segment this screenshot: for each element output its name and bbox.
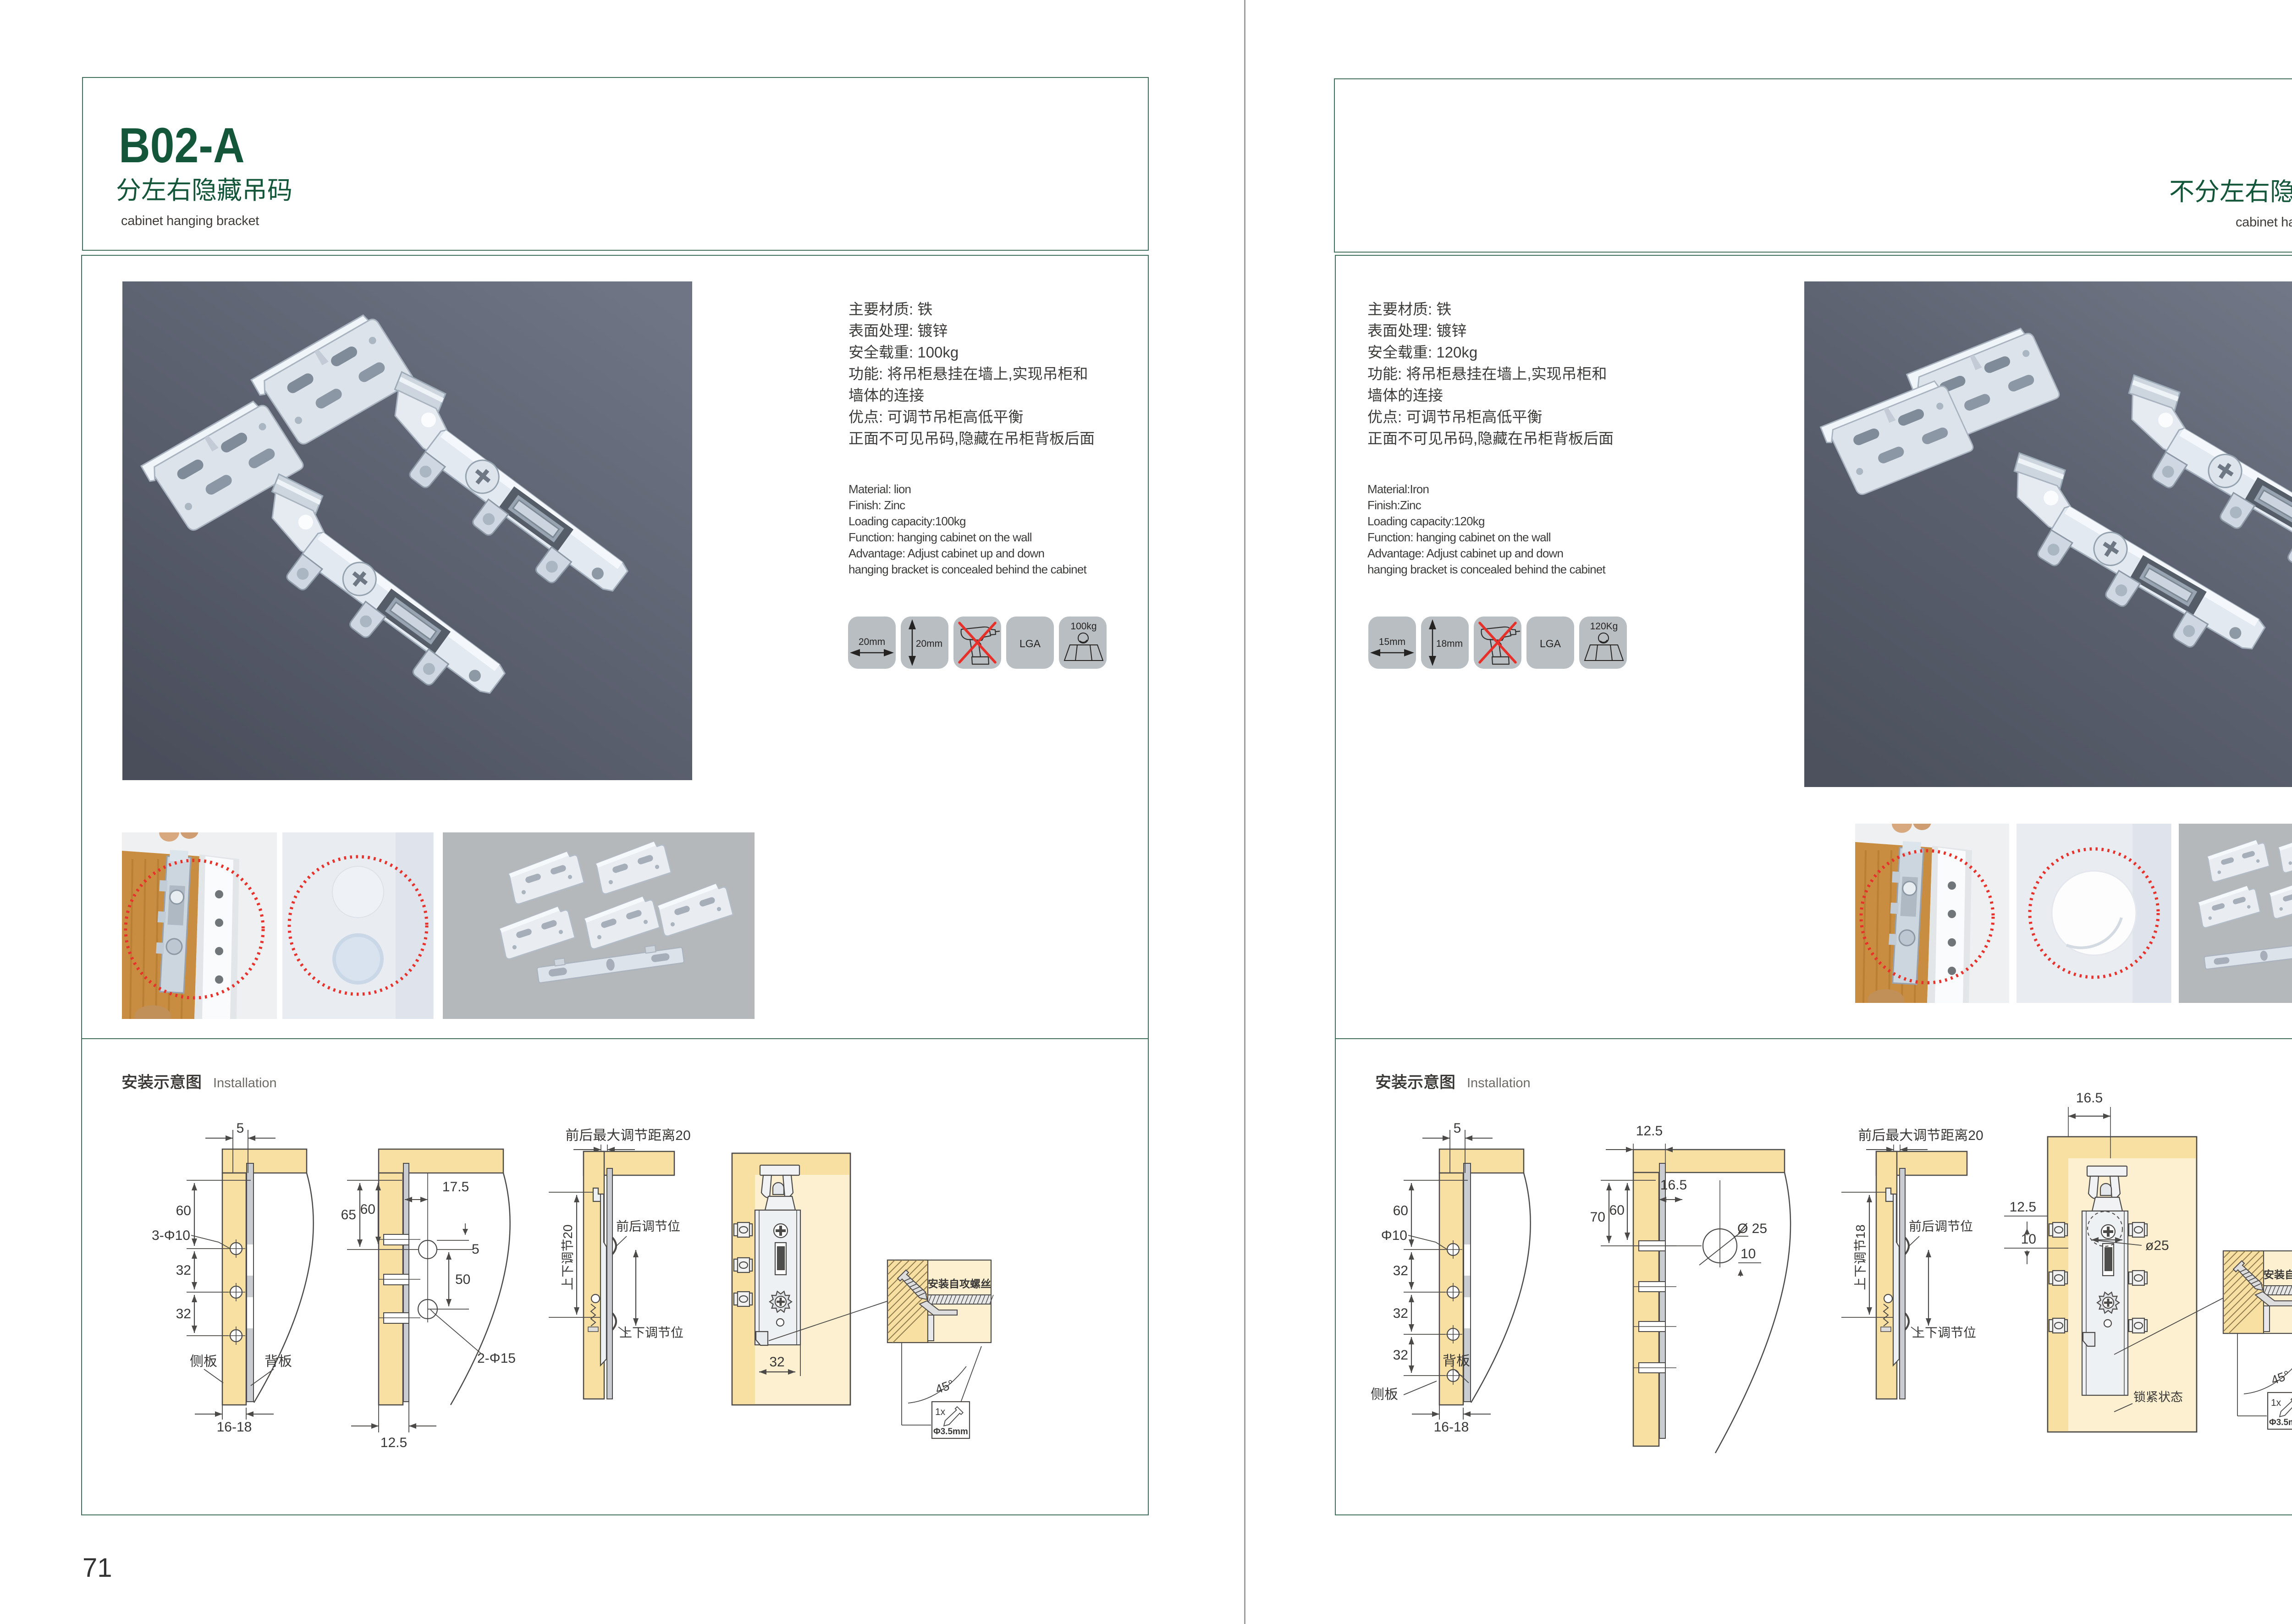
svg-text:32: 32 <box>1393 1306 1408 1321</box>
svg-text:18mm: 18mm <box>1436 639 1463 649</box>
svg-text:32: 32 <box>1393 1263 1408 1278</box>
svg-text:1x: 1x <box>935 1407 946 1417</box>
svg-text:16.5: 16.5 <box>1660 1178 1687 1193</box>
svg-text:50: 50 <box>455 1272 470 1287</box>
svg-text:20mm: 20mm <box>859 637 885 647</box>
svg-text:5: 5 <box>237 1121 244 1136</box>
svg-text:20mm: 20mm <box>916 639 942 649</box>
svg-text:上下调节位: 上下调节位 <box>619 1323 683 1341</box>
svg-text:45°: 45° <box>934 1377 956 1396</box>
svg-text:120Kg: 120Kg <box>1590 621 1618 632</box>
svg-text:Ø 25: Ø 25 <box>1737 1221 1767 1236</box>
svg-text:32: 32 <box>176 1263 191 1278</box>
svg-text:上下调节18: 上下调节18 <box>1851 1224 1869 1290</box>
svg-text:锁紧状态: 锁紧状态 <box>2133 1387 2183 1405</box>
svg-text:16-18: 16-18 <box>1434 1420 1469 1435</box>
svg-text:前后最大调节距离20: 前后最大调节距离20 <box>565 1124 690 1144</box>
svg-text:LGA: LGA <box>1019 638 1041 650</box>
svg-text:32: 32 <box>1393 1348 1408 1363</box>
svg-text:Installation: Installation <box>213 1076 277 1090</box>
svg-text:侧板: 侧板 <box>190 1350 217 1370</box>
svg-text:65: 65 <box>341 1207 356 1222</box>
svg-text:2-Φ15: 2-Φ15 <box>477 1351 516 1366</box>
svg-text:16.5: 16.5 <box>2076 1090 2103 1106</box>
svg-text:60: 60 <box>1609 1203 1625 1218</box>
svg-text:12.5: 12.5 <box>1636 1123 1663 1139</box>
svg-text:32: 32 <box>769 1354 784 1370</box>
svg-text:安装示意图: 安装示意图 <box>121 1069 202 1093</box>
svg-text:70: 70 <box>1590 1210 1605 1225</box>
svg-text:100kg: 100kg <box>1070 621 1096 632</box>
svg-text:侧板: 侧板 <box>1371 1383 1398 1403</box>
svg-text:15mm: 15mm <box>1379 637 1405 647</box>
svg-text:3-Φ10: 3-Φ10 <box>152 1228 190 1243</box>
svg-text:前后最大调节距离20: 前后最大调节距离20 <box>1858 1124 1983 1144</box>
svg-text:12.5: 12.5 <box>2010 1200 2036 1215</box>
svg-text:45°: 45° <box>2270 1368 2292 1387</box>
svg-text:60: 60 <box>360 1202 375 1217</box>
svg-text:32: 32 <box>176 1306 191 1321</box>
svg-text:60: 60 <box>176 1203 191 1218</box>
svg-text:上下调节位: 上下调节位 <box>1912 1323 1976 1341</box>
svg-text:背板: 背板 <box>264 1350 292 1370</box>
svg-text:Installation: Installation <box>1467 1076 1531 1090</box>
svg-text:前后调节位: 前后调节位 <box>616 1217 680 1235</box>
svg-text:Φ3.5mm: Φ3.5mm <box>2269 1418 2292 1427</box>
svg-text:5: 5 <box>472 1242 479 1257</box>
svg-text:Φ3.5mm: Φ3.5mm <box>933 1427 968 1437</box>
svg-text:背板: 背板 <box>1443 1349 1470 1370</box>
svg-text:16-18: 16-18 <box>217 1420 252 1435</box>
svg-text:前后调节位: 前后调节位 <box>1909 1217 1973 1235</box>
svg-text:1x: 1x <box>2271 1398 2281 1408</box>
svg-text:安装自攻螺丝: 安装自攻螺丝 <box>928 1275 991 1291</box>
svg-text:60: 60 <box>1393 1203 1408 1218</box>
svg-text:5: 5 <box>1454 1121 1461 1136</box>
svg-text:Φ10: Φ10 <box>1381 1228 1407 1243</box>
svg-text:10: 10 <box>2021 1232 2036 1247</box>
svg-text:17.5: 17.5 <box>442 1179 469 1195</box>
svg-text:10: 10 <box>1741 1246 1756 1261</box>
svg-text:上下调节20: 上下调节20 <box>558 1224 576 1290</box>
svg-text:安装自攻螺丝: 安装自攻螺丝 <box>2264 1266 2292 1282</box>
svg-text:12.5: 12.5 <box>380 1435 407 1450</box>
svg-text:ø25: ø25 <box>2145 1238 2169 1253</box>
svg-text:安装示意图: 安装示意图 <box>1375 1069 1455 1093</box>
svg-text:LGA: LGA <box>1540 638 1561 650</box>
